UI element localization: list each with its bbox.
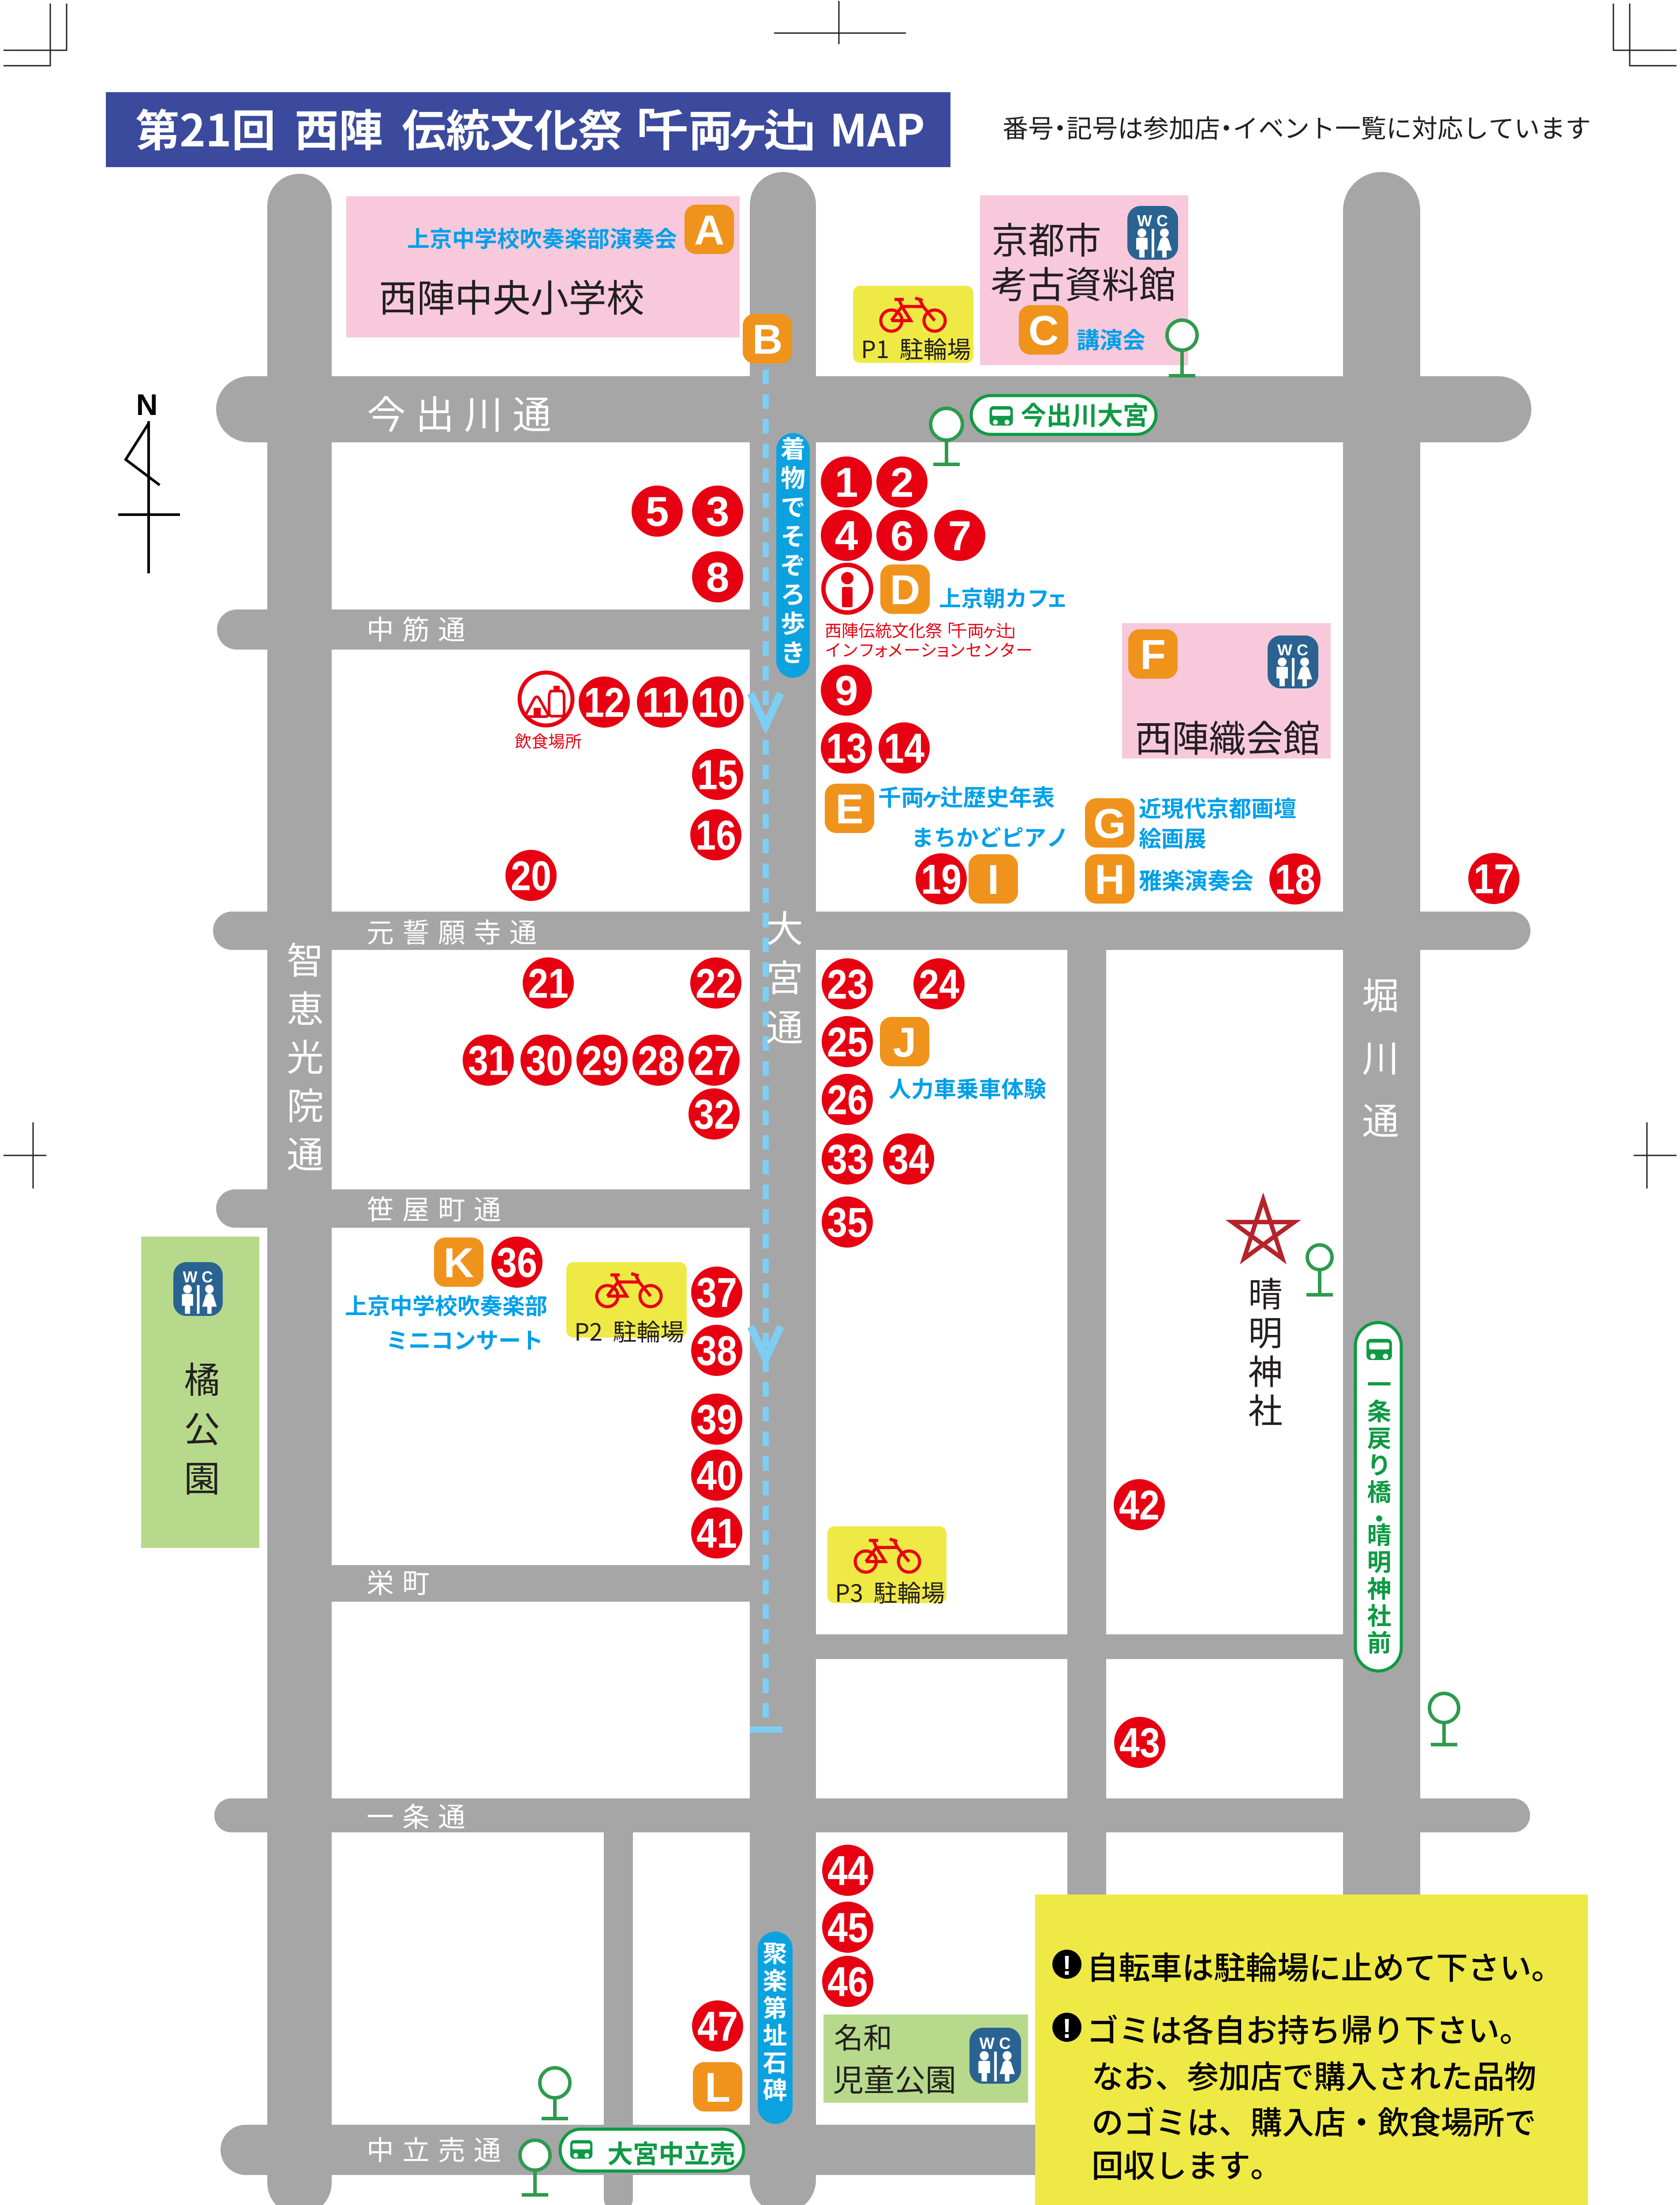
svg-text:43: 43 [1119, 1719, 1160, 1766]
svg-text:47: 47 [697, 2003, 738, 2050]
svg-text:!: ! [1063, 2014, 1072, 2044]
svg-text:26: 26 [827, 1076, 868, 1123]
svg-text:7: 7 [948, 512, 972, 559]
svg-text:2: 2 [891, 459, 914, 506]
svg-text:19: 19 [921, 856, 962, 903]
svg-text:46: 46 [827, 1958, 868, 2005]
svg-text:D: D [890, 567, 920, 613]
svg-text:44: 44 [827, 1847, 868, 1894]
svg-text:34: 34 [888, 1136, 929, 1183]
svg-text:12: 12 [584, 679, 625, 726]
svg-text:38: 38 [696, 1327, 737, 1374]
svg-text:24: 24 [919, 961, 959, 1008]
svg-text:!: ! [1063, 1951, 1072, 1981]
svg-text:35: 35 [827, 1199, 868, 1246]
svg-text:31: 31 [468, 1037, 509, 1084]
svg-text:36: 36 [497, 1239, 537, 1286]
svg-text:E: E [835, 786, 863, 833]
svg-text:9: 9 [835, 667, 858, 714]
svg-text:28: 28 [638, 1037, 678, 1084]
svg-text:H: H [1095, 856, 1125, 903]
svg-text:37: 37 [696, 1269, 737, 1316]
svg-text:K: K [444, 1240, 474, 1286]
svg-text:32: 32 [694, 1091, 734, 1138]
svg-text:29: 29 [582, 1037, 622, 1084]
svg-text:39: 39 [696, 1396, 737, 1443]
svg-text:17: 17 [1474, 856, 1514, 902]
svg-text:11: 11 [642, 679, 683, 726]
svg-text:10: 10 [698, 679, 738, 726]
svg-text:B: B [752, 316, 783, 363]
svg-text:4: 4 [835, 512, 858, 559]
svg-text:33: 33 [827, 1136, 868, 1183]
svg-text:C: C [1029, 307, 1059, 354]
svg-text:16: 16 [696, 812, 736, 859]
svg-text:G: G [1093, 800, 1126, 847]
svg-text:14: 14 [884, 725, 924, 772]
svg-text:W C: W C [1137, 212, 1168, 230]
svg-text:22: 22 [696, 960, 736, 1007]
svg-text:41: 41 [696, 1510, 737, 1557]
svg-text:21: 21 [528, 960, 569, 1007]
svg-text:27: 27 [694, 1037, 734, 1084]
svg-text:W C: W C [183, 1268, 213, 1286]
svg-text:15: 15 [697, 751, 738, 798]
svg-text:30: 30 [526, 1037, 566, 1084]
svg-text:13: 13 [826, 725, 867, 772]
svg-text:W C: W C [1277, 642, 1308, 659]
svg-text:45: 45 [827, 1904, 868, 1951]
svg-text:L: L [705, 2064, 730, 2111]
svg-text:F: F [1140, 632, 1166, 678]
svg-text:3: 3 [706, 488, 730, 535]
svg-text:J: J [893, 1019, 917, 1066]
svg-text:6: 6 [891, 512, 914, 559]
svg-text:N: N [136, 388, 157, 422]
svg-text:I: I [988, 856, 999, 903]
svg-text:25: 25 [827, 1019, 868, 1065]
svg-text:20: 20 [511, 852, 551, 899]
svg-text:42: 42 [1119, 1482, 1160, 1529]
svg-text:1: 1 [835, 459, 858, 506]
svg-text:A: A [694, 207, 725, 254]
svg-text:40: 40 [696, 1452, 737, 1499]
svg-text:W C: W C [979, 2033, 1010, 2052]
svg-text:23: 23 [827, 961, 868, 1008]
svg-text:18: 18 [1275, 856, 1315, 903]
svg-text:8: 8 [706, 554, 730, 601]
svg-text:5: 5 [646, 488, 669, 535]
